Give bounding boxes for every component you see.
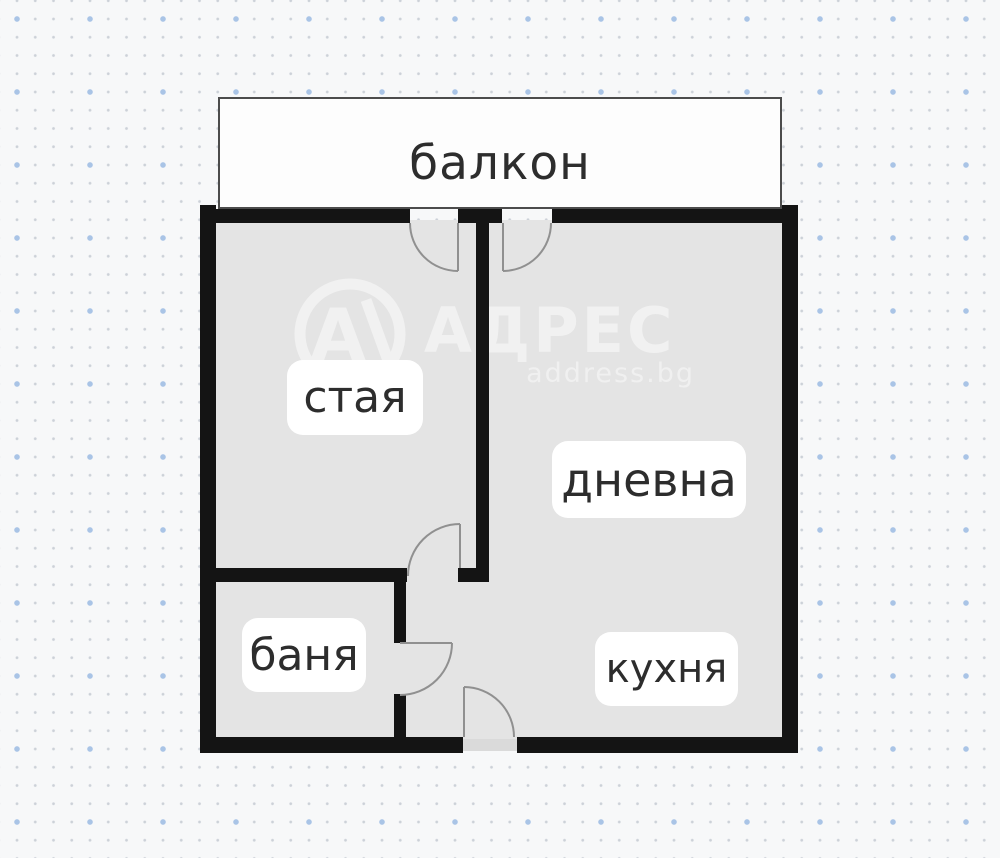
living-room-label: дневна: [561, 453, 737, 507]
entrance-door-swing-arc: [464, 687, 514, 737]
wall-top-left-segment: [200, 209, 410, 223]
room-label: стая: [303, 372, 406, 423]
floor-plan-drawing: [0, 0, 1000, 858]
room-door-swing-arc: [408, 524, 460, 576]
wall-outer-left: [200, 205, 216, 753]
balcony-left-door-swing-arc: [410, 223, 458, 271]
wall-top-middle-segment: [458, 209, 502, 223]
wall-bottom-left-segment: [200, 737, 463, 753]
wall-top-right-segment: [552, 209, 798, 223]
bath-door-swing-arc: [400, 643, 452, 695]
kitchen-label: кухня: [606, 646, 728, 692]
room-label-box: стая: [287, 360, 423, 435]
living-room-label-box: дневна: [552, 441, 746, 518]
kitchen-label-box: кухня: [595, 632, 738, 706]
wall-room-living-divider: [476, 223, 489, 582]
bathroom-label-box: баня: [242, 618, 366, 692]
wall-outer-right: [782, 205, 798, 753]
wall-bath-lower-segment: [394, 694, 406, 737]
wall-bottom-right-segment: [517, 737, 798, 753]
wall-room-bath-divider: [216, 568, 407, 582]
wall-bath-upper-segment: [394, 582, 406, 643]
bathroom-label: баня: [249, 630, 358, 681]
balcony-right-door-swing-arc: [503, 223, 551, 271]
floor-plan-canvas: балкон A АДРЕС address.bg: [0, 0, 1000, 858]
entrance-threshold: [463, 739, 517, 751]
wall-divider-cap: [458, 568, 489, 582]
